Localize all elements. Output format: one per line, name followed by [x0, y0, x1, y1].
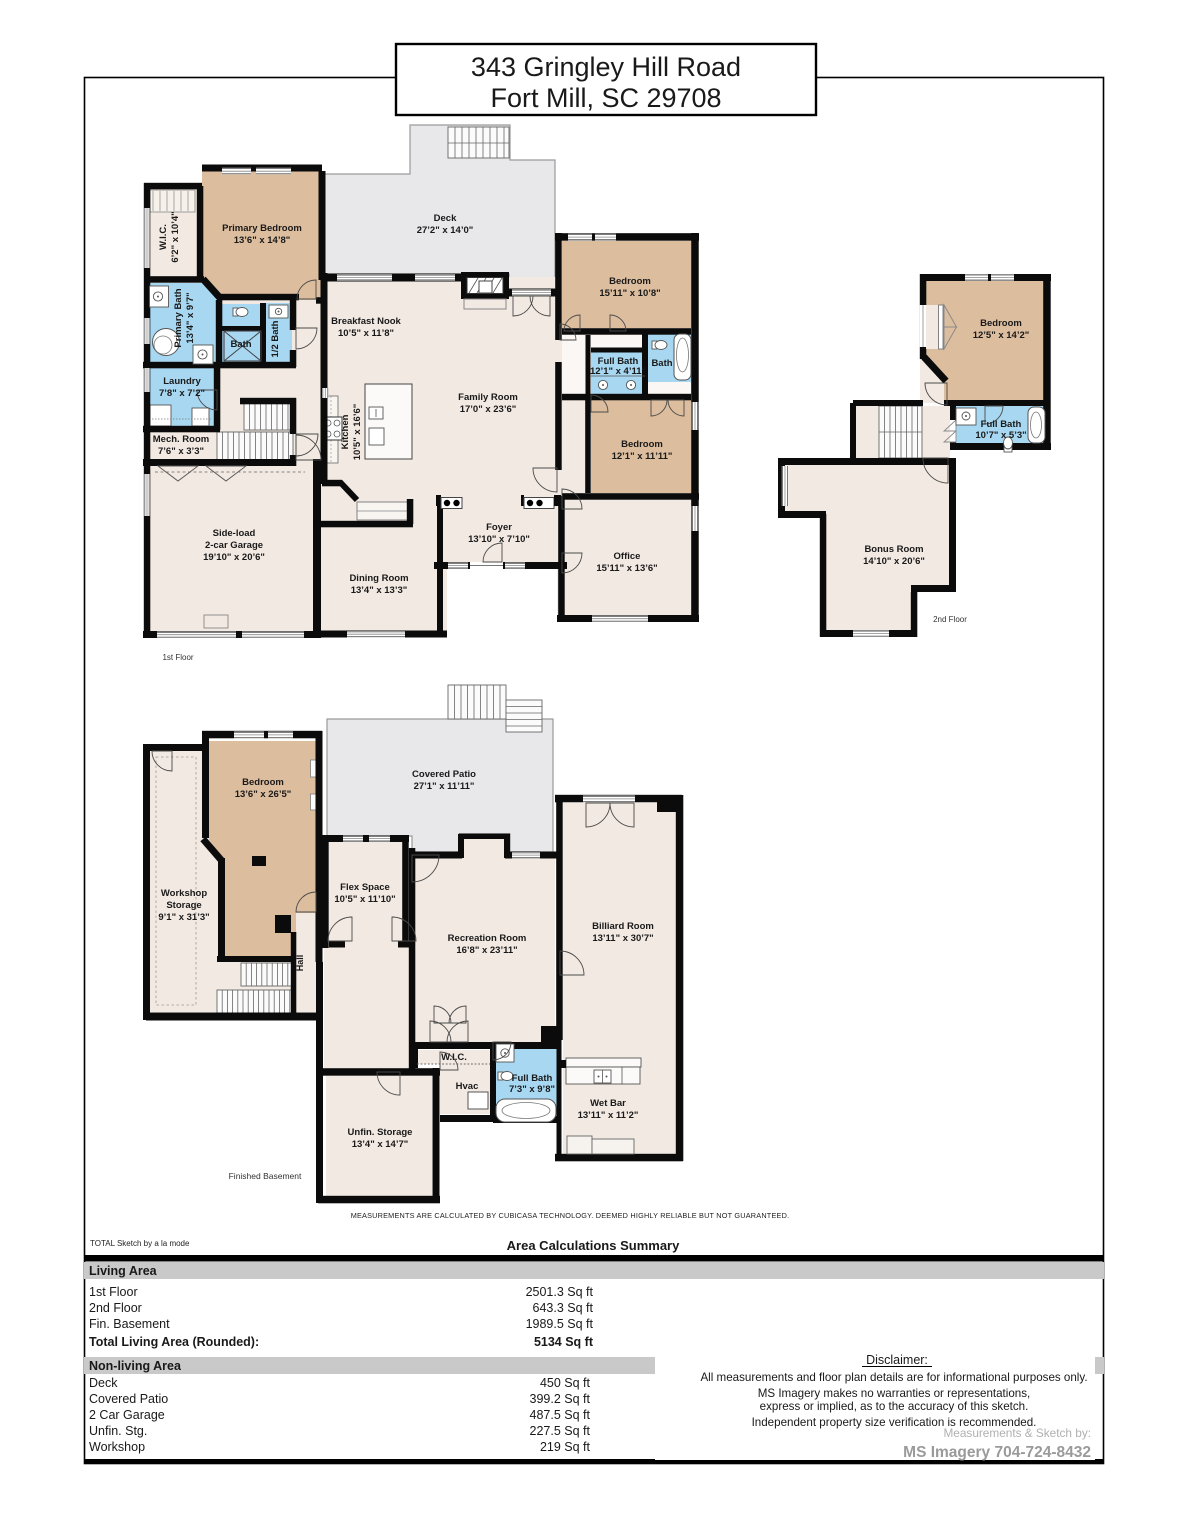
svg-text:Dining Room: Dining Room	[349, 573, 408, 584]
svg-text:2501.3 Sq ft: 2501.3 Sq ft	[526, 1285, 594, 1299]
svg-text:487.5 Sq ft: 487.5 Sq ft	[530, 1408, 591, 1422]
svg-text:7’8" x 7’2": 7’8" x 7’2"	[159, 388, 205, 399]
svg-text:10’5" x 16’6": 10’5" x 16’6"	[352, 404, 363, 461]
svg-text:Hvac: Hvac	[456, 1081, 479, 1092]
svg-text:13’6" x 14’8": 13’6" x 14’8"	[234, 235, 291, 246]
svg-text:13’10" x 7’10": 13’10" x 7’10"	[468, 534, 530, 545]
svg-text:1/2 Bath: 1/2 Bath	[270, 320, 281, 357]
svg-text:Unfin. Storage: Unfin. Storage	[348, 1127, 413, 1138]
svg-text:W.I.C.: W.I.C.	[158, 224, 169, 250]
svg-text:Disclaimer:: Disclaimer:	[866, 1353, 928, 1367]
svg-text:7’3" x 9’8": 7’3" x 9’8"	[509, 1084, 555, 1095]
svg-text:2-car Garage: 2-car Garage	[205, 540, 263, 551]
svg-text:Billiard Room: Billiard Room	[592, 921, 654, 932]
svg-text:13’11" x 30’7": 13’11" x 30’7"	[592, 933, 653, 944]
svg-text:Total Living Area (Rounded):: Total Living Area (Rounded):	[89, 1335, 259, 1349]
svg-text:15’11" x 13’6": 15’11" x 13’6"	[596, 563, 657, 574]
svg-text:399.2 Sq ft: 399.2 Sq ft	[530, 1392, 591, 1406]
svg-text:10’7" x 5’3": 10’7" x 5’3"	[975, 430, 1026, 441]
svg-text:Hall: Hall	[295, 955, 305, 972]
svg-text:MEASUREMENTS ARE CALCULATED BY: MEASUREMENTS ARE CALCULATED BY CUBICASA …	[351, 1211, 790, 1220]
svg-text:Covered Patio: Covered Patio	[412, 769, 476, 780]
svg-text:Bedroom: Bedroom	[242, 777, 284, 788]
svg-text:219 Sq ft: 219 Sq ft	[540, 1440, 591, 1454]
svg-text:12’5" x 14’2": 12’5" x 14’2"	[973, 330, 1030, 341]
svg-text:Full Bath: Full Bath	[981, 419, 1022, 430]
svg-text:227.5 Sq ft: 227.5 Sq ft	[530, 1424, 591, 1438]
svg-text:Non-living Area: Non-living Area	[89, 1359, 182, 1373]
svg-text:Bath: Bath	[230, 339, 251, 350]
svg-text:12’1" x 4’11": 12’1" x 4’11"	[590, 366, 646, 377]
svg-text:Bedroom: Bedroom	[980, 318, 1022, 329]
svg-text:Area Calculations Summary: Area Calculations Summary	[507, 1238, 680, 1253]
svg-text:15’11" x 10’8": 15’11" x 10’8"	[599, 288, 660, 299]
svg-text:Breakfast Nook: Breakfast Nook	[331, 316, 401, 327]
svg-text:TOTAL Sketch by a la mode: TOTAL Sketch by a la mode	[90, 1239, 190, 1248]
svg-text:Bedroom: Bedroom	[609, 276, 651, 287]
svg-text:Wet Bar: Wet Bar	[590, 1098, 626, 1109]
svg-text:Unfin. Stg.: Unfin. Stg.	[89, 1424, 147, 1438]
svg-text:Fort Mill, SC 29708: Fort Mill, SC 29708	[490, 83, 721, 113]
svg-text:2 Car Garage: 2 Car Garage	[89, 1408, 165, 1422]
svg-text:5134 Sq ft: 5134 Sq ft	[534, 1335, 594, 1349]
svg-text:Family Room: Family Room	[458, 392, 518, 403]
svg-text:Bonus Room: Bonus Room	[864, 544, 923, 555]
svg-text:Office: Office	[614, 551, 641, 562]
svg-text:Primary Bath: Primary Bath	[173, 288, 184, 347]
svg-text:10’5" x 11’10": 10’5" x 11’10"	[334, 894, 395, 905]
svg-text:2nd Floor: 2nd Floor	[933, 615, 967, 624]
svg-text:17’0" x 23’6": 17’0" x 23’6"	[460, 404, 517, 415]
svg-text:Primary Bedroom: Primary Bedroom	[222, 223, 302, 234]
svg-text:Covered Patio: Covered Patio	[89, 1392, 168, 1406]
svg-text:1st Floor: 1st Floor	[162, 653, 193, 662]
svg-text:Laundry: Laundry	[163, 376, 201, 387]
svg-text:Foyer: Foyer	[486, 522, 512, 533]
svg-text:W.I.C.: W.I.C.	[441, 1052, 467, 1063]
svg-text:13’11" x 11’2": 13’11" x 11’2"	[578, 1110, 639, 1121]
svg-text:13’4" x 14’7": 13’4" x 14’7"	[352, 1139, 409, 1150]
svg-text:Bedroom: Bedroom	[621, 439, 663, 450]
svg-text:MS Imagery 704-724-8432: MS Imagery 704-724-8432	[903, 1444, 1091, 1461]
svg-text:Flex Space: Flex Space	[340, 882, 390, 893]
svg-text:Side-load: Side-load	[213, 528, 256, 539]
svg-text:1989.5 Sq ft: 1989.5 Sq ft	[526, 1317, 594, 1331]
svg-text:Fin. Basement: Fin. Basement	[89, 1317, 170, 1331]
svg-text:MS Imagery makes no warranties: MS Imagery makes no warranties or repres…	[758, 1387, 1031, 1400]
svg-text:Deck: Deck	[434, 213, 457, 224]
svg-text:14’10" x 20’6": 14’10" x 20’6"	[863, 556, 925, 567]
svg-text:Bath: Bath	[651, 358, 672, 369]
svg-text:Storage: Storage	[166, 900, 201, 911]
svg-text:9’1" x 31’3": 9’1" x 31’3"	[158, 912, 209, 923]
svg-text:Living Area: Living Area	[89, 1264, 158, 1278]
svg-text:Workshop: Workshop	[161, 888, 207, 899]
svg-text:7’6" x 3’3": 7’6" x 3’3"	[158, 446, 204, 457]
svg-text:19’10" x 20’6": 19’10" x 20’6"	[203, 552, 265, 563]
svg-text:343 Gringley Hill Road: 343 Gringley Hill Road	[471, 52, 741, 82]
svg-text:All measurements and floor pla: All measurements and floor plan details …	[700, 1371, 1087, 1384]
svg-text:1st Floor: 1st Floor	[89, 1285, 138, 1299]
svg-text:Kitchen: Kitchen	[340, 414, 351, 449]
svg-text:10’5" x 11’8": 10’5" x 11’8"	[338, 328, 394, 339]
svg-text:2nd Floor: 2nd Floor	[89, 1301, 142, 1315]
svg-text:13’4" x 9’7": 13’4" x 9’7"	[185, 292, 196, 343]
svg-text:Full Bath: Full Bath	[512, 1073, 553, 1084]
svg-text:27’2" x 14’0": 27’2" x 14’0"	[417, 225, 474, 236]
svg-text:Mech. Room: Mech. Room	[153, 434, 209, 445]
svg-text:express or implied, as to the: express or implied, as to the accuracy o…	[760, 1400, 1029, 1413]
svg-text:16’8" x 23’11": 16’8" x 23’11"	[456, 945, 517, 956]
svg-text:Recreation Room: Recreation Room	[448, 933, 527, 944]
svg-text:Workshop: Workshop	[89, 1440, 145, 1454]
svg-text:450 Sq ft: 450 Sq ft	[540, 1376, 591, 1390]
svg-text:643.3 Sq ft: 643.3 Sq ft	[533, 1301, 594, 1315]
svg-text:Finished Basement: Finished Basement	[229, 1171, 302, 1181]
svg-text:13’4" x 13’3": 13’4" x 13’3"	[351, 585, 408, 596]
svg-text:6’2" x 10’4": 6’2" x 10’4"	[170, 211, 181, 262]
svg-text:Measurements & Sketch by:: Measurements & Sketch by:	[943, 1426, 1091, 1440]
svg-text:27’1" x 11’11": 27’1" x 11’11"	[414, 781, 475, 792]
svg-text:12’1" x 11’11": 12’1" x 11’11"	[612, 451, 673, 462]
svg-text:13’6" x 26’5": 13’6" x 26’5"	[235, 789, 292, 800]
svg-text:Deck: Deck	[89, 1376, 118, 1390]
